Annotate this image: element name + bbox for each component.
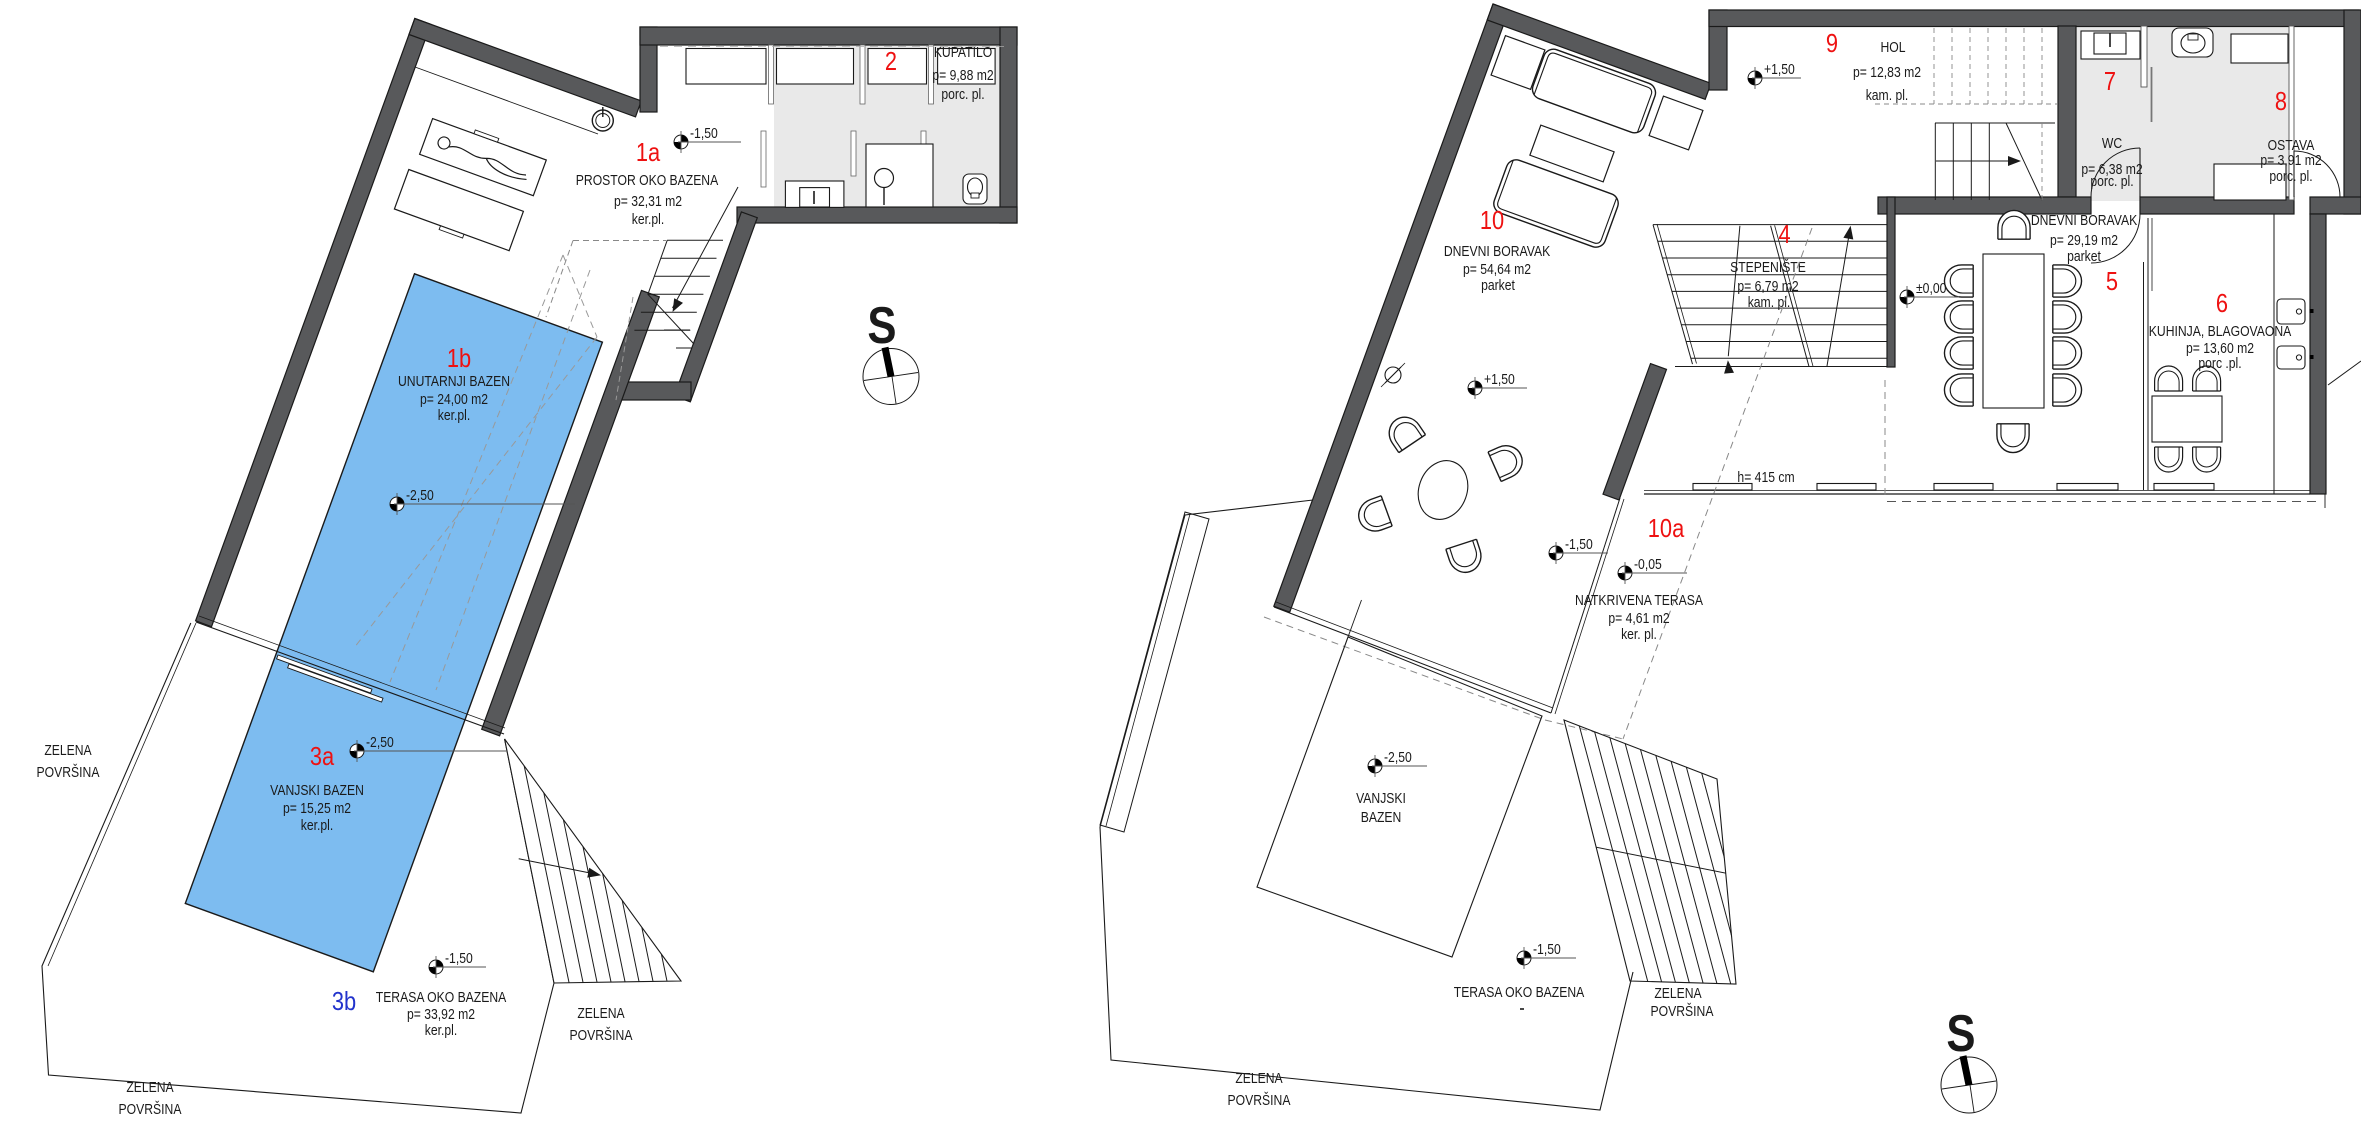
svg-text:NATKRIVENA TERASA: NATKRIVENA TERASA [1575, 592, 1703, 608]
svg-text:VANJSKI: VANJSKI [1356, 790, 1406, 806]
svg-text:POVRŠINA: POVRŠINA [119, 1101, 182, 1117]
svg-text:ker. pl.: ker. pl. [1621, 626, 1657, 642]
svg-text:ZELENA: ZELENA [126, 1079, 173, 1095]
svg-text:-1,50: -1,50 [690, 125, 718, 141]
svg-text:p= 24,00 m2: p= 24,00 m2 [420, 391, 488, 407]
svg-text:TERASA OKO BAZENA: TERASA OKO BAZENA [1454, 984, 1585, 1000]
svg-text:S: S [1946, 1006, 1975, 1063]
svg-text:p= 3,91 m2: p= 3,91 m2 [2260, 152, 2321, 168]
svg-text:kam. pl.: kam. pl. [1748, 294, 1791, 310]
svg-text:10: 10 [1480, 206, 1504, 235]
svg-text:1b: 1b [447, 344, 471, 373]
svg-text:KUPATILO: KUPATILO [934, 44, 992, 60]
svg-text:STEPENIŠTE: STEPENIŠTE [1730, 259, 1806, 275]
svg-text:6: 6 [2216, 289, 2228, 318]
svg-text:1a: 1a [636, 138, 661, 167]
svg-text:p= 13,60 m2: p= 13,60 m2 [2186, 340, 2254, 356]
svg-text:-2,50: -2,50 [366, 734, 394, 750]
svg-text:p= 4,61 m2: p= 4,61 m2 [1608, 610, 1669, 626]
svg-text:POVRŠINA: POVRŠINA [1651, 1003, 1714, 1019]
svg-text:POVRŠINA: POVRŠINA [570, 1027, 633, 1043]
svg-text:3b: 3b [332, 987, 356, 1016]
svg-text:TERASA OKO BAZENA: TERASA OKO BAZENA [376, 989, 507, 1005]
svg-text:-1,50: -1,50 [1533, 941, 1561, 957]
svg-text:PROSTOR OKO BAZENA: PROSTOR OKO BAZENA [576, 172, 718, 188]
svg-text:p= 32,31 m2: p= 32,31 m2 [614, 193, 682, 209]
svg-text:-1,50: -1,50 [445, 950, 473, 966]
svg-text:p= 6,79 m2: p= 6,79 m2 [1737, 278, 1798, 294]
svg-text:ZELENA: ZELENA [577, 1005, 624, 1021]
svg-text:BAZEN: BAZEN [1361, 809, 1402, 825]
svg-text:POVRŠINA: POVRŠINA [1228, 1092, 1291, 1108]
svg-text:porc. pl.: porc. pl. [941, 86, 984, 102]
svg-text:-2,50: -2,50 [1384, 749, 1412, 765]
svg-text:ker.pl.: ker.pl. [632, 211, 664, 227]
svg-text:HOL: HOL [1880, 39, 1905, 55]
svg-text:-2,50: -2,50 [406, 487, 434, 503]
svg-text:DNEVNI BORAVAK: DNEVNI BORAVAK [2031, 212, 2137, 228]
svg-text:p= 54,64 m2: p= 54,64 m2 [1463, 261, 1531, 277]
svg-text:5: 5 [2106, 267, 2118, 296]
svg-text:±0,00: ±0,00 [1916, 280, 1946, 296]
svg-text:p= 15,25 m2: p= 15,25 m2 [283, 800, 351, 816]
svg-text:ZELENA: ZELENA [1654, 985, 1701, 1001]
svg-text:ker.pl.: ker.pl. [438, 407, 470, 423]
svg-text:+1,50: +1,50 [1764, 61, 1795, 77]
svg-text:ZELENA: ZELENA [1235, 1070, 1282, 1086]
svg-text:ZELENA: ZELENA [44, 742, 91, 758]
svg-text:3a: 3a [310, 742, 335, 771]
svg-text:S: S [867, 298, 896, 355]
svg-text:p= 12,83 m2: p= 12,83 m2 [1853, 64, 1921, 80]
svg-text:UNUTARNJI BAZEN: UNUTARNJI BAZEN [398, 373, 510, 389]
svg-text:+1,50: +1,50 [1484, 371, 1515, 387]
svg-text:ker.pl.: ker.pl. [425, 1022, 457, 1038]
svg-text:WC: WC [2102, 135, 2123, 151]
svg-text:porc. pl.: porc. pl. [2269, 168, 2312, 184]
svg-text:VANJSKI BAZEN: VANJSKI BAZEN [270, 782, 364, 798]
svg-text:2: 2 [885, 47, 897, 76]
svg-text:p= 29,19 m2: p= 29,19 m2 [2050, 232, 2118, 248]
svg-text:-1,50: -1,50 [1565, 536, 1593, 552]
svg-text:9: 9 [1826, 29, 1838, 58]
svg-text:POVRŠINA: POVRŠINA [37, 764, 100, 780]
svg-text:OSTAVA: OSTAVA [2268, 137, 2315, 153]
svg-text:p= 9,88 m2: p= 9,88 m2 [932, 67, 993, 83]
svg-text:ker.pl.: ker.pl. [301, 817, 333, 833]
svg-text:parket: parket [2067, 248, 2101, 264]
svg-text:kam. pl.: kam. pl. [1866, 87, 1909, 103]
svg-text:KUHINJA, BLAGOVAONA: KUHINJA, BLAGOVAONA [2149, 323, 2291, 339]
svg-text:7: 7 [2104, 67, 2116, 96]
svg-text:10a: 10a [1648, 514, 1685, 543]
svg-text:4: 4 [1779, 220, 1791, 249]
svg-text:p= 33,92 m2: p= 33,92 m2 [407, 1006, 475, 1022]
svg-text:h= 415 cm: h= 415 cm [1737, 469, 1794, 485]
svg-text:DNEVNI BORAVAK: DNEVNI BORAVAK [1444, 243, 1550, 259]
svg-text:porc .pl.: porc .pl. [2198, 355, 2241, 371]
svg-text:-0,05: -0,05 [1634, 556, 1662, 572]
svg-text:porc. pl.: porc. pl. [2090, 173, 2133, 189]
svg-text:parket: parket [1481, 277, 1515, 293]
svg-text:8: 8 [2275, 87, 2287, 116]
